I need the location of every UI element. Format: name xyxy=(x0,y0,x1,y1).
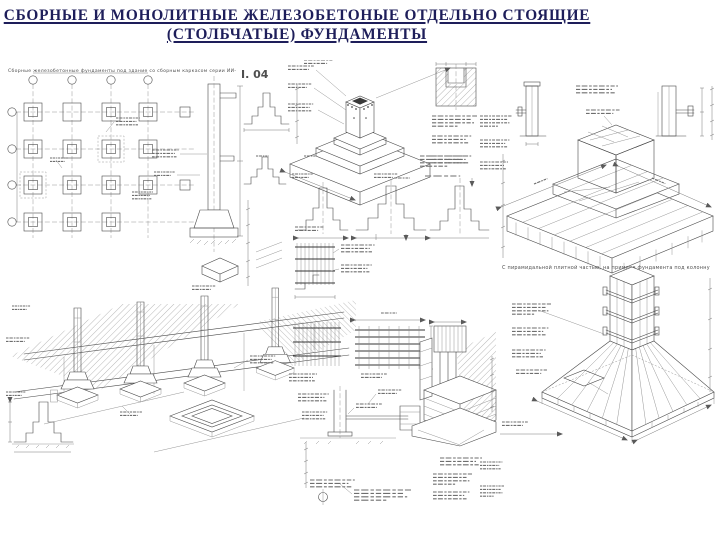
wall-section-drawing xyxy=(152,76,243,289)
precast-column-socket-axonometric xyxy=(412,322,496,499)
slide-title-line1: СБОРНЫЕ И МОНОЛИТНЫЕ ЖЕЛЕЗОБЕТОНЫЕ ОТДЕЛ… xyxy=(4,7,591,26)
socket-section-detail xyxy=(432,62,477,163)
scanned-drawings-canvas: Сборные железобетонные фундаменты под зд… xyxy=(4,60,716,538)
slide: СБОРНЫЕ И МОНОЛИТНЫЕ ЖЕЛЕЗОБЕТОНЫЕ ОТДЕЛ… xyxy=(0,0,720,540)
pyramid-formwork-axonometric xyxy=(480,267,714,496)
sheet-edge-sections xyxy=(244,93,289,286)
series-label: І. 04 xyxy=(241,68,269,81)
precast-foundation-plan-drawing: Сборные железобетонные фундаменты под зд… xyxy=(8,68,269,238)
frame-axonometric-drawing xyxy=(10,288,356,452)
middle-caption-notes xyxy=(310,480,411,500)
formwork-panel-section-details xyxy=(516,82,714,146)
stepped-formwork-axonometric xyxy=(480,110,713,274)
footing-squares xyxy=(24,103,190,231)
right-panel-caption: С пирамидальной плитной частью, на приме… xyxy=(502,264,710,271)
slide-title-line2: (СТОЛБЧАТЫЕ) ФУНДАМЕНТЫ xyxy=(167,26,427,45)
monolithic-foundation-axonometric xyxy=(285,60,450,205)
axis-bubbles xyxy=(8,76,152,226)
hatched-footing-axon xyxy=(170,400,254,437)
slide-title: СБОРНЫЕ И МОНОЛИТНЫЕ ЖЕЛЕЗОБЕТОНЫЕ ОТДЕЛ… xyxy=(0,7,594,44)
